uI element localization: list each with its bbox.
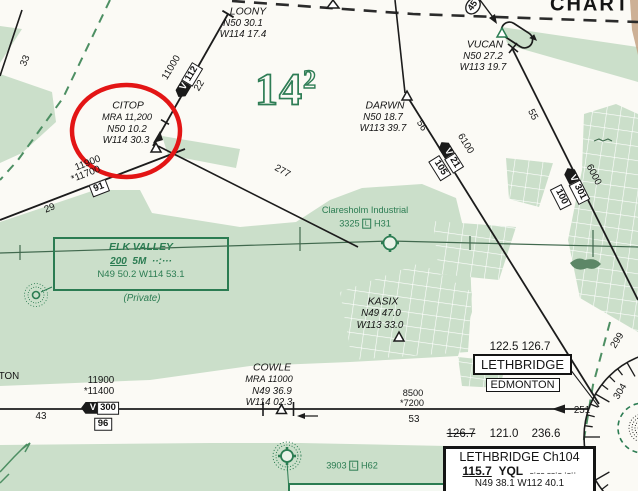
arrow-251 <box>552 405 565 414</box>
elk-valley-box: ELK VALLEY 200 5M ··:··· N49 50.2 W114 5… <box>53 237 229 291</box>
fix-vucan-lon: W113 19.7 <box>460 63 507 73</box>
fix-cowle-mra: MRA 11000 <box>245 375 293 385</box>
fix-kasix-lon: W113 33.0 <box>357 321 404 331</box>
claresholm-data: 3325 L H31 <box>339 219 391 230</box>
edmonton-box: EDMONTON <box>486 378 560 392</box>
fix-citop-lat: N50 10.2 <box>107 125 147 135</box>
freq-126-7-struck: 126.7 <box>447 428 476 440</box>
fix-cowle-lat: N49 36.9 <box>252 387 292 397</box>
fix-kasix-name: KASIX <box>368 298 399 309</box>
freqs-top: 122.5 126.7 <box>490 341 551 353</box>
airway-number: 300 <box>97 402 119 415</box>
partial-name-ton: TON <box>0 372 19 382</box>
distance-43: 43 <box>36 412 47 422</box>
lighting-box-L: L <box>362 219 371 229</box>
fix-vucan-name: VUCAN <box>467 41 503 52</box>
vor-morse: –·–– ––·– ·–·· <box>530 470 577 477</box>
fix-loony-lon: W114 17.4 <box>220 30 267 40</box>
elk-valley-private: (Private) <box>123 294 160 304</box>
mea-11900b: 11900 <box>88 376 115 386</box>
moca-11400: *11400 <box>84 387 114 397</box>
fix-darwn-lat: N50 18.7 <box>363 113 403 123</box>
lethbridge-fss: LETHBRIDGE EDMONTON <box>473 354 572 393</box>
elk-valley-name: ELK VALLEY <box>55 241 227 255</box>
fix-darwn-lon: W113 39.7 <box>360 124 407 134</box>
fix-citop-name: CITOP <box>112 102 144 113</box>
fix-loony-lat: N50 30.1 <box>223 19 263 29</box>
freq-121-0: 121.0 <box>490 428 519 440</box>
claresholm-name: Claresholm Industrial <box>322 206 408 216</box>
elk-valley-coords: N49 50.2 W114 53.1 <box>55 269 227 282</box>
lighting-dots: ··:··· <box>152 256 172 267</box>
radial-251: 251 <box>574 406 590 416</box>
fix-citop-lon: W114 30.3 <box>103 136 150 146</box>
v-flag: V <box>81 402 97 414</box>
vor-coords: N49 38.1 W112 40.1 <box>446 478 593 489</box>
fix-cowle-lon: W114 02.3 <box>246 398 293 408</box>
fix-loony-name: LOONY <box>230 8 266 19</box>
lethbridge-vor-box: LETHBRIDGE Ch104 115.7 YQL –·–– ––·– ·–·… <box>443 446 596 491</box>
chart-title-fragment: CHART <box>550 0 630 17</box>
fix-cowle-name: COWLE <box>253 364 291 375</box>
lethbridge-beacon <box>618 403 638 453</box>
freq-236-6: 236.6 <box>532 428 561 440</box>
h62-data: 3903 L H62 <box>326 461 378 472</box>
lighting-box-L: L <box>349 461 358 471</box>
enroute-chart: CHART 142 LOONY N50 30.1 W114 17.4 CITOP… <box>0 0 638 491</box>
fix-darwn-name: DARWN <box>365 102 404 113</box>
area-number: 142 <box>255 63 317 116</box>
elk-valley-data: 200 5M ··:··· <box>55 255 227 269</box>
airway-badge-v300: V300 <box>81 402 119 415</box>
vor-freq-line: 115.7 YQL –·–– ––·– ·–·· <box>446 464 593 478</box>
fix-kasix-lat: N49 47.0 <box>361 309 401 319</box>
distance-53: 53 <box>409 415 420 425</box>
moca-7200: *7200 <box>400 399 424 409</box>
fix-citop-mra: MRA 11,200 <box>102 113 152 123</box>
vor-name: LETHBRIDGE Ch104 <box>446 450 593 464</box>
lethbridge-box: LETHBRIDGE <box>473 354 572 375</box>
cutoff-green-box <box>289 484 448 491</box>
area-number-sup: 2 <box>303 65 317 94</box>
fix-vucan-lat: N50 27.2 <box>463 52 503 62</box>
dist-box-96: 96 <box>94 418 112 431</box>
